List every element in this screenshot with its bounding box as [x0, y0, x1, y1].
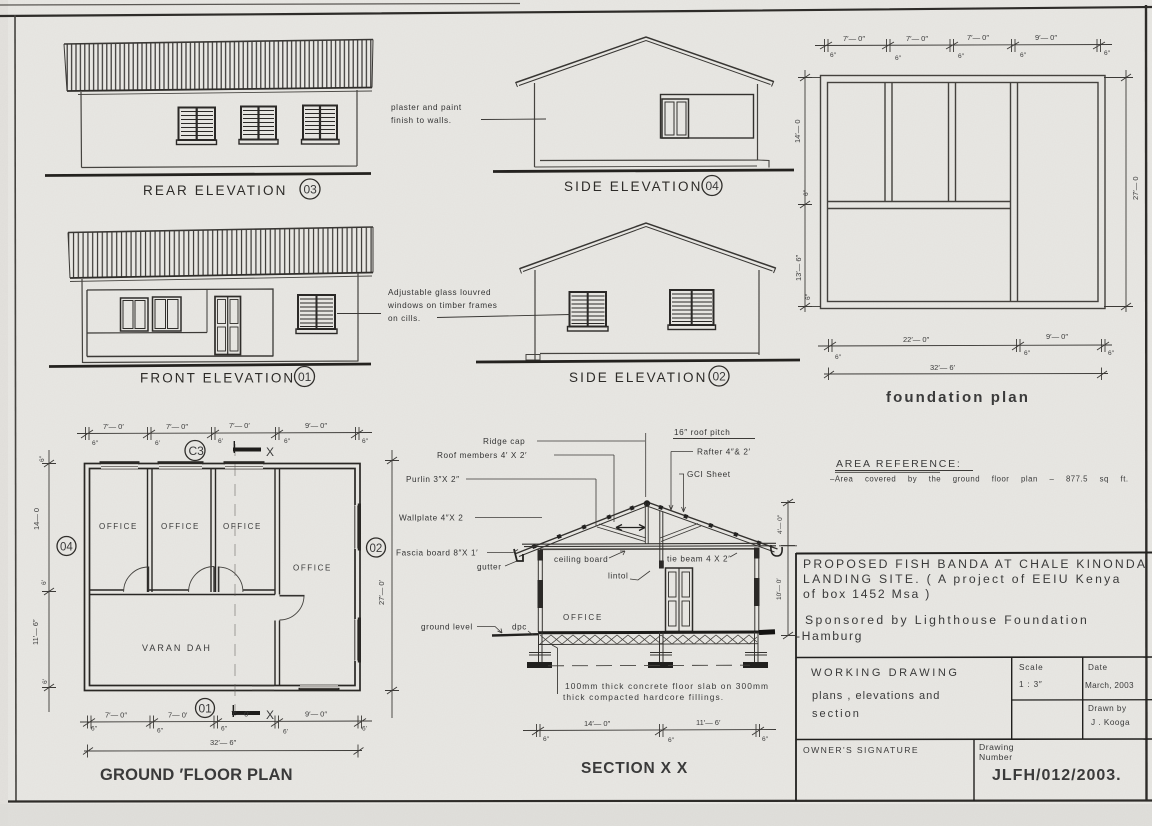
- svg-text:foundation plan: foundation plan: [886, 389, 1030, 406]
- svg-text:X: X: [266, 708, 274, 722]
- svg-text:thick compacted hardcore fil: thick compacted hardcore fillings.: [563, 692, 724, 702]
- svg-text:6″: 6″: [830, 52, 837, 59]
- svg-text:Number: Number: [979, 752, 1013, 762]
- svg-text:6′: 6′: [41, 579, 48, 585]
- svg-text:6″: 6″: [895, 55, 902, 62]
- svg-text:6″: 6″: [39, 455, 46, 462]
- svg-text:AREA REFERENCE:: AREA REFERENCE:: [836, 458, 962, 470]
- svg-text:14— 0: 14— 0: [32, 508, 41, 530]
- svg-text:of box 1452 Msa ): of box 1452 Msa ): [803, 587, 931, 601]
- svg-text:6′′: 6′′: [157, 728, 164, 735]
- svg-text:Date: Date: [1088, 663, 1108, 672]
- svg-text:ceiling board: ceiling board: [554, 555, 608, 564]
- svg-text:14′— 0: 14′— 0: [793, 119, 802, 143]
- svg-text:Roof members 4′ X 2′: Roof members 4′ X 2′: [437, 451, 527, 460]
- svg-text:6′: 6′: [283, 729, 289, 736]
- svg-text:7′— 0″: 7′— 0″: [166, 422, 188, 431]
- svg-text:finish to walls.: finish to walls.: [391, 116, 452, 125]
- svg-text:01: 01: [199, 702, 213, 716]
- svg-text:6″: 6″: [1024, 350, 1031, 357]
- svg-text:6′: 6′: [218, 438, 224, 445]
- svg-text:6″: 6″: [362, 438, 369, 445]
- svg-text:gutter: gutter: [477, 563, 502, 572]
- svg-text:Scale: Scale: [1019, 663, 1043, 672]
- svg-text:11′— 6″: 11′— 6″: [31, 619, 40, 645]
- svg-text:6″: 6″: [284, 438, 291, 445]
- svg-text:section: section: [812, 708, 861, 720]
- svg-text:Drawing: Drawing: [979, 742, 1014, 752]
- svg-text:6′′: 6′′: [221, 726, 228, 733]
- svg-text:6′: 6′: [362, 726, 368, 733]
- svg-text:6′: 6′: [42, 678, 49, 684]
- svg-text:7′— 0′: 7′— 0′: [103, 422, 124, 431]
- svg-text:32′— 6″: 32′— 6″: [210, 738, 237, 747]
- svg-text:OFFICE: OFFICE: [161, 522, 200, 531]
- svg-text:OFFICE: OFFICE: [293, 564, 332, 573]
- svg-text:7′— 0″: 7′— 0″: [843, 34, 865, 43]
- svg-text:Ridge cap: Ridge cap: [483, 437, 525, 446]
- svg-text:9′— 0″: 9′— 0″: [305, 421, 327, 430]
- svg-text:lintol: lintol: [608, 572, 628, 581]
- svg-text:7′— 0′′: 7′— 0′′: [105, 711, 128, 720]
- svg-text:6″: 6″: [1108, 350, 1115, 357]
- svg-text:FRONT ELEVATION: FRONT ELEVATION: [140, 371, 295, 386]
- svg-text:X: X: [266, 445, 274, 459]
- svg-text:6″: 6″: [803, 189, 810, 196]
- svg-text:plaster and paint: plaster and paint: [391, 103, 462, 112]
- svg-text:plans , elevations and: plans , elevations and: [812, 690, 940, 702]
- svg-text:04: 04: [706, 179, 720, 193]
- svg-text:27′— 0: 27′— 0: [1131, 176, 1140, 200]
- svg-text:03: 03: [304, 183, 318, 197]
- svg-text:OFFICE: OFFICE: [563, 613, 603, 622]
- svg-text:6″: 6″: [543, 736, 550, 743]
- svg-text:SIDE ELEVATION: SIDE ELEVATION: [569, 370, 707, 385]
- svg-text:Adjustable glass louvred: Adjustable glass louvred: [388, 288, 491, 297]
- svg-text:C3: C3: [189, 444, 205, 458]
- svg-text:4′— 0″: 4′— 0″: [777, 514, 784, 534]
- svg-text:02: 02: [370, 543, 383, 555]
- svg-text:6″: 6″: [1020, 52, 1027, 59]
- svg-text:Wallplate 4″X 2: Wallplate 4″X 2: [399, 514, 463, 523]
- svg-text:tie beam 4 X 2′: tie beam 4 X 2′: [667, 555, 730, 564]
- svg-text:dpc: dpc: [512, 623, 527, 632]
- svg-text:OFFICE: OFFICE: [223, 522, 262, 531]
- svg-text:J . Kooga: J . Kooga: [1091, 718, 1130, 727]
- svg-text:11′— 6′: 11′— 6′: [696, 718, 721, 727]
- svg-text:7′—0′: 7′—0′: [231, 710, 250, 719]
- svg-text:6″: 6″: [91, 726, 98, 733]
- svg-text:04: 04: [60, 542, 73, 554]
- svg-text:9′— 0″: 9′— 0″: [1035, 33, 1057, 42]
- svg-text:14′— 0″: 14′— 0″: [584, 719, 611, 728]
- svg-text:32′— 6′: 32′— 6′: [930, 363, 956, 372]
- svg-text:Drawn by: Drawn by: [1088, 704, 1127, 713]
- svg-text:WORKING DRAWING: WORKING DRAWING: [811, 667, 960, 679]
- svg-text:-Hamburg: -Hamburg: [796, 629, 863, 643]
- svg-text:PROPOSED FISH BANDA AT CHA: PROPOSED FISH BANDA AT CHALE KINONDA: [803, 557, 1147, 571]
- svg-text:VARAN DAH: VARAN DAH: [142, 643, 212, 653]
- svg-text:6″: 6″: [835, 354, 842, 361]
- svg-text:REAR ELEVATION: REAR ELEVATION: [143, 183, 287, 198]
- svg-text:Fascia board 8″X 1′: Fascia board 8″X 1′: [396, 549, 478, 558]
- svg-text:Purlin 3″X 2″: Purlin 3″X 2″: [406, 475, 460, 484]
- svg-text:6″: 6″: [92, 440, 99, 447]
- svg-text:Sponsored by Lighthouse F: Sponsored by Lighthouse Foundation: [805, 613, 1089, 627]
- svg-text:100mm thick concrete floor sla: 100mm thick concrete floor slab on 300mm: [565, 681, 769, 691]
- svg-text:16″ roof pitch: 16″ roof pitch: [674, 428, 730, 437]
- svg-text:7— 0′: 7— 0′: [168, 711, 188, 720]
- svg-text:windows on timber frames: windows on timber frames: [387, 301, 498, 310]
- svg-text:March, 2003: March, 2003: [1085, 681, 1134, 690]
- svg-text:–Area covered by the ground: –Area covered by the ground floor plan –…: [830, 475, 1129, 484]
- svg-text:02: 02: [713, 370, 727, 384]
- svg-text:1 : 3″: 1 : 3″: [1019, 680, 1043, 689]
- svg-text:SECTION X X: SECTION X X: [581, 760, 688, 777]
- svg-text:9′— 0″: 9′— 0″: [1046, 332, 1068, 341]
- svg-text:JLFH/012/2003.: JLFH/012/2003.: [992, 767, 1122, 784]
- svg-text:OWNER'S SIGNATURE: OWNER'S SIGNATURE: [803, 745, 919, 755]
- svg-text:GROUND ′FLOOR PLAN: GROUND ′FLOOR PLAN: [100, 766, 293, 784]
- svg-text:6″: 6″: [958, 53, 965, 60]
- svg-text:13′— 6″: 13′— 6″: [794, 254, 803, 281]
- svg-text:6′: 6′: [155, 440, 161, 447]
- svg-text:7′— 0′: 7′— 0′: [229, 421, 250, 430]
- svg-text:ground level: ground level: [421, 623, 473, 632]
- svg-text:OFFICE: OFFICE: [99, 522, 138, 531]
- svg-text:on cills.: on cills.: [388, 314, 421, 323]
- svg-text:GCI Sheet: GCI Sheet: [687, 470, 731, 479]
- svg-text:9′— 0′′: 9′— 0′′: [305, 710, 328, 719]
- svg-text:6″: 6″: [1104, 50, 1111, 57]
- svg-text:7′— 0″: 7′— 0″: [906, 34, 928, 43]
- svg-text:27′— 0′: 27′— 0′: [377, 579, 386, 605]
- svg-text:22′— 0″: 22′— 0″: [903, 335, 930, 344]
- svg-text:Rafter 4″& 2′: Rafter 4″& 2′: [697, 448, 751, 457]
- svg-text:7′— 0″: 7′— 0″: [967, 33, 989, 42]
- svg-text:6″: 6″: [805, 293, 812, 300]
- svg-text:10′— 0′: 10′— 0′: [776, 578, 783, 600]
- svg-text:6″: 6″: [668, 737, 675, 744]
- svg-text:SIDE ELEVATION: SIDE ELEVATION: [564, 179, 702, 194]
- svg-text:01: 01: [298, 370, 312, 384]
- svg-text:6″: 6″: [762, 736, 769, 743]
- svg-text:LANDING SITE. ( A project o: LANDING SITE. ( A project of EEIU Kenya: [803, 572, 1122, 586]
